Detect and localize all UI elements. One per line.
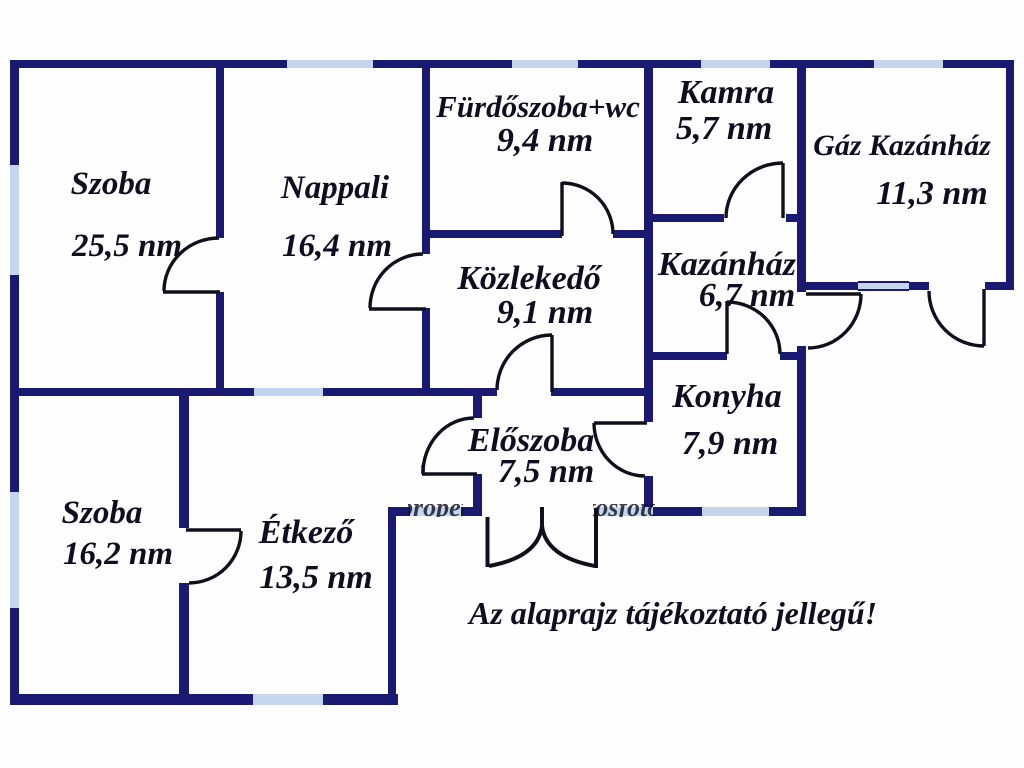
svg-text:Közlekedő: Közlekedő <box>456 260 603 297</box>
svg-text:Fürdőszoba+wc: Fürdőszoba+wc <box>435 89 640 124</box>
svg-text:25,5 nm: 25,5 nm <box>71 228 182 264</box>
svg-text:5,7 nm: 5,7 nm <box>676 110 772 147</box>
svg-text:Szoba: Szoba <box>62 495 143 531</box>
svg-text:13,5 nm: 13,5 nm <box>259 559 372 596</box>
svg-text:Gáz Kazánház: Gáz Kazánház <box>813 129 991 162</box>
svg-text:Konyha: Konyha <box>671 378 782 415</box>
svg-text:Étkező: Étkező <box>258 514 355 551</box>
svg-text:Az alaprajz tájékoztató jelleg: Az alaprajz tájékoztató jellegű! <box>467 595 877 631</box>
svg-text:16,4 nm: 16,4 nm <box>282 228 392 264</box>
svg-text:9,4 nm: 9,4 nm <box>497 122 593 159</box>
svg-text:7,5 nm: 7,5 nm <box>498 453 594 490</box>
svg-text:propertyph: propertyph <box>398 493 517 522</box>
svg-text:11,3 nm: 11,3 nm <box>876 175 987 212</box>
svg-text:16,2 nm: 16,2 nm <box>63 536 173 572</box>
svg-text:Szoba: Szoba <box>71 166 152 202</box>
svg-text:6,7 nm: 6,7 nm <box>699 277 795 314</box>
svg-text:Nappali: Nappali <box>280 170 390 206</box>
svg-text:7,9 nm: 7,9 nm <box>682 425 778 462</box>
svg-text:9,1 nm: 9,1 nm <box>497 294 593 331</box>
svg-text:Kamra: Kamra <box>677 74 774 111</box>
